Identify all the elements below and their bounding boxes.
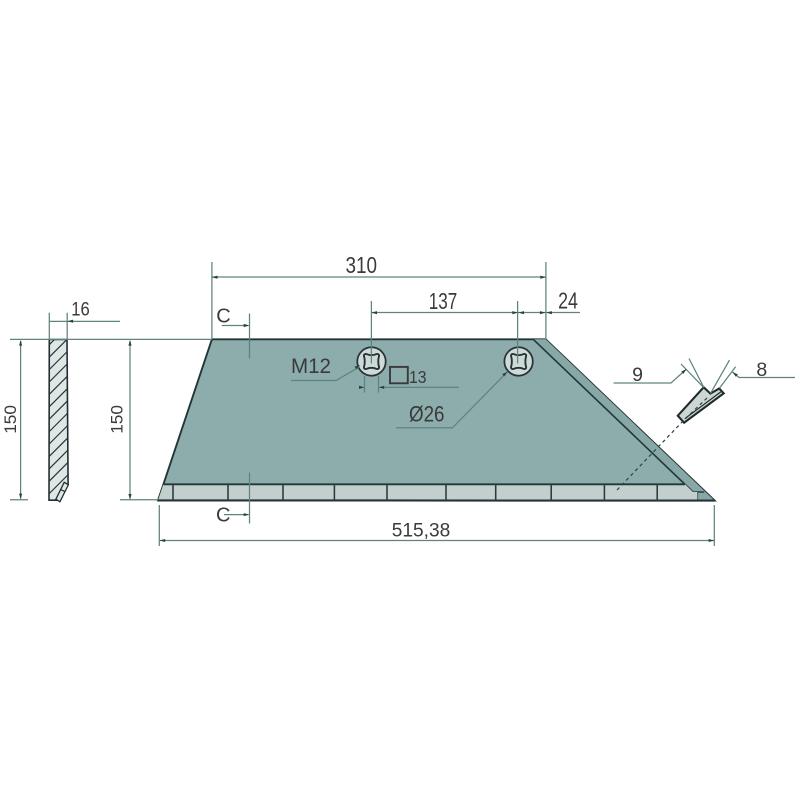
svg-text:Ø26: Ø26 — [409, 401, 445, 426]
svg-text:C: C — [216, 306, 230, 328]
svg-text:310: 310 — [346, 252, 378, 278]
svg-text:9: 9 — [632, 364, 643, 386]
svg-text:150: 150 — [108, 405, 127, 434]
svg-text:24: 24 — [558, 288, 578, 314]
svg-text:8: 8 — [756, 359, 767, 381]
svg-text:16: 16 — [71, 299, 90, 320]
svg-text:150: 150 — [1, 405, 20, 434]
svg-text:13: 13 — [409, 367, 427, 387]
svg-text:M12: M12 — [291, 355, 331, 378]
svg-text:515,38: 515,38 — [392, 520, 451, 542]
svg-text:137: 137 — [429, 288, 458, 314]
svg-text:C: C — [216, 505, 230, 527]
